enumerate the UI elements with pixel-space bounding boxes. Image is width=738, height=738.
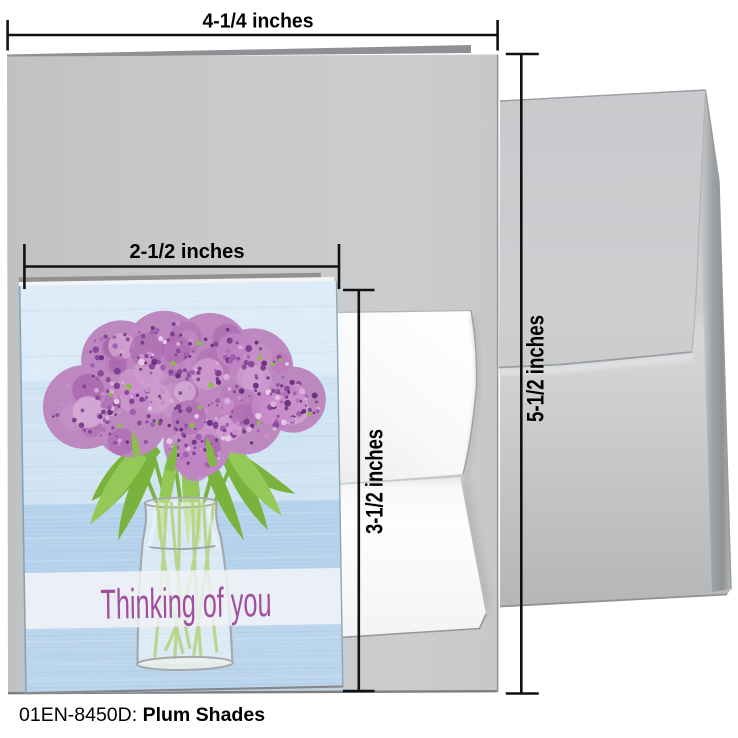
svg-text:4-1/4 inches: 4-1/4 inches [203,11,314,33]
svg-text:2-1/2 inches: 2-1/2 inches [130,241,245,263]
svg-text:3-1/2 inches: 3-1/2 inches [362,429,389,534]
svg-text:01EN-8450D: Plum Shades: 01EN-8450D: Plum Shades [19,704,265,726]
svg-text:5-1/2 inches: 5-1/2 inches [523,315,550,422]
svg-text:Thinking of you: Thinking of you [100,578,272,628]
